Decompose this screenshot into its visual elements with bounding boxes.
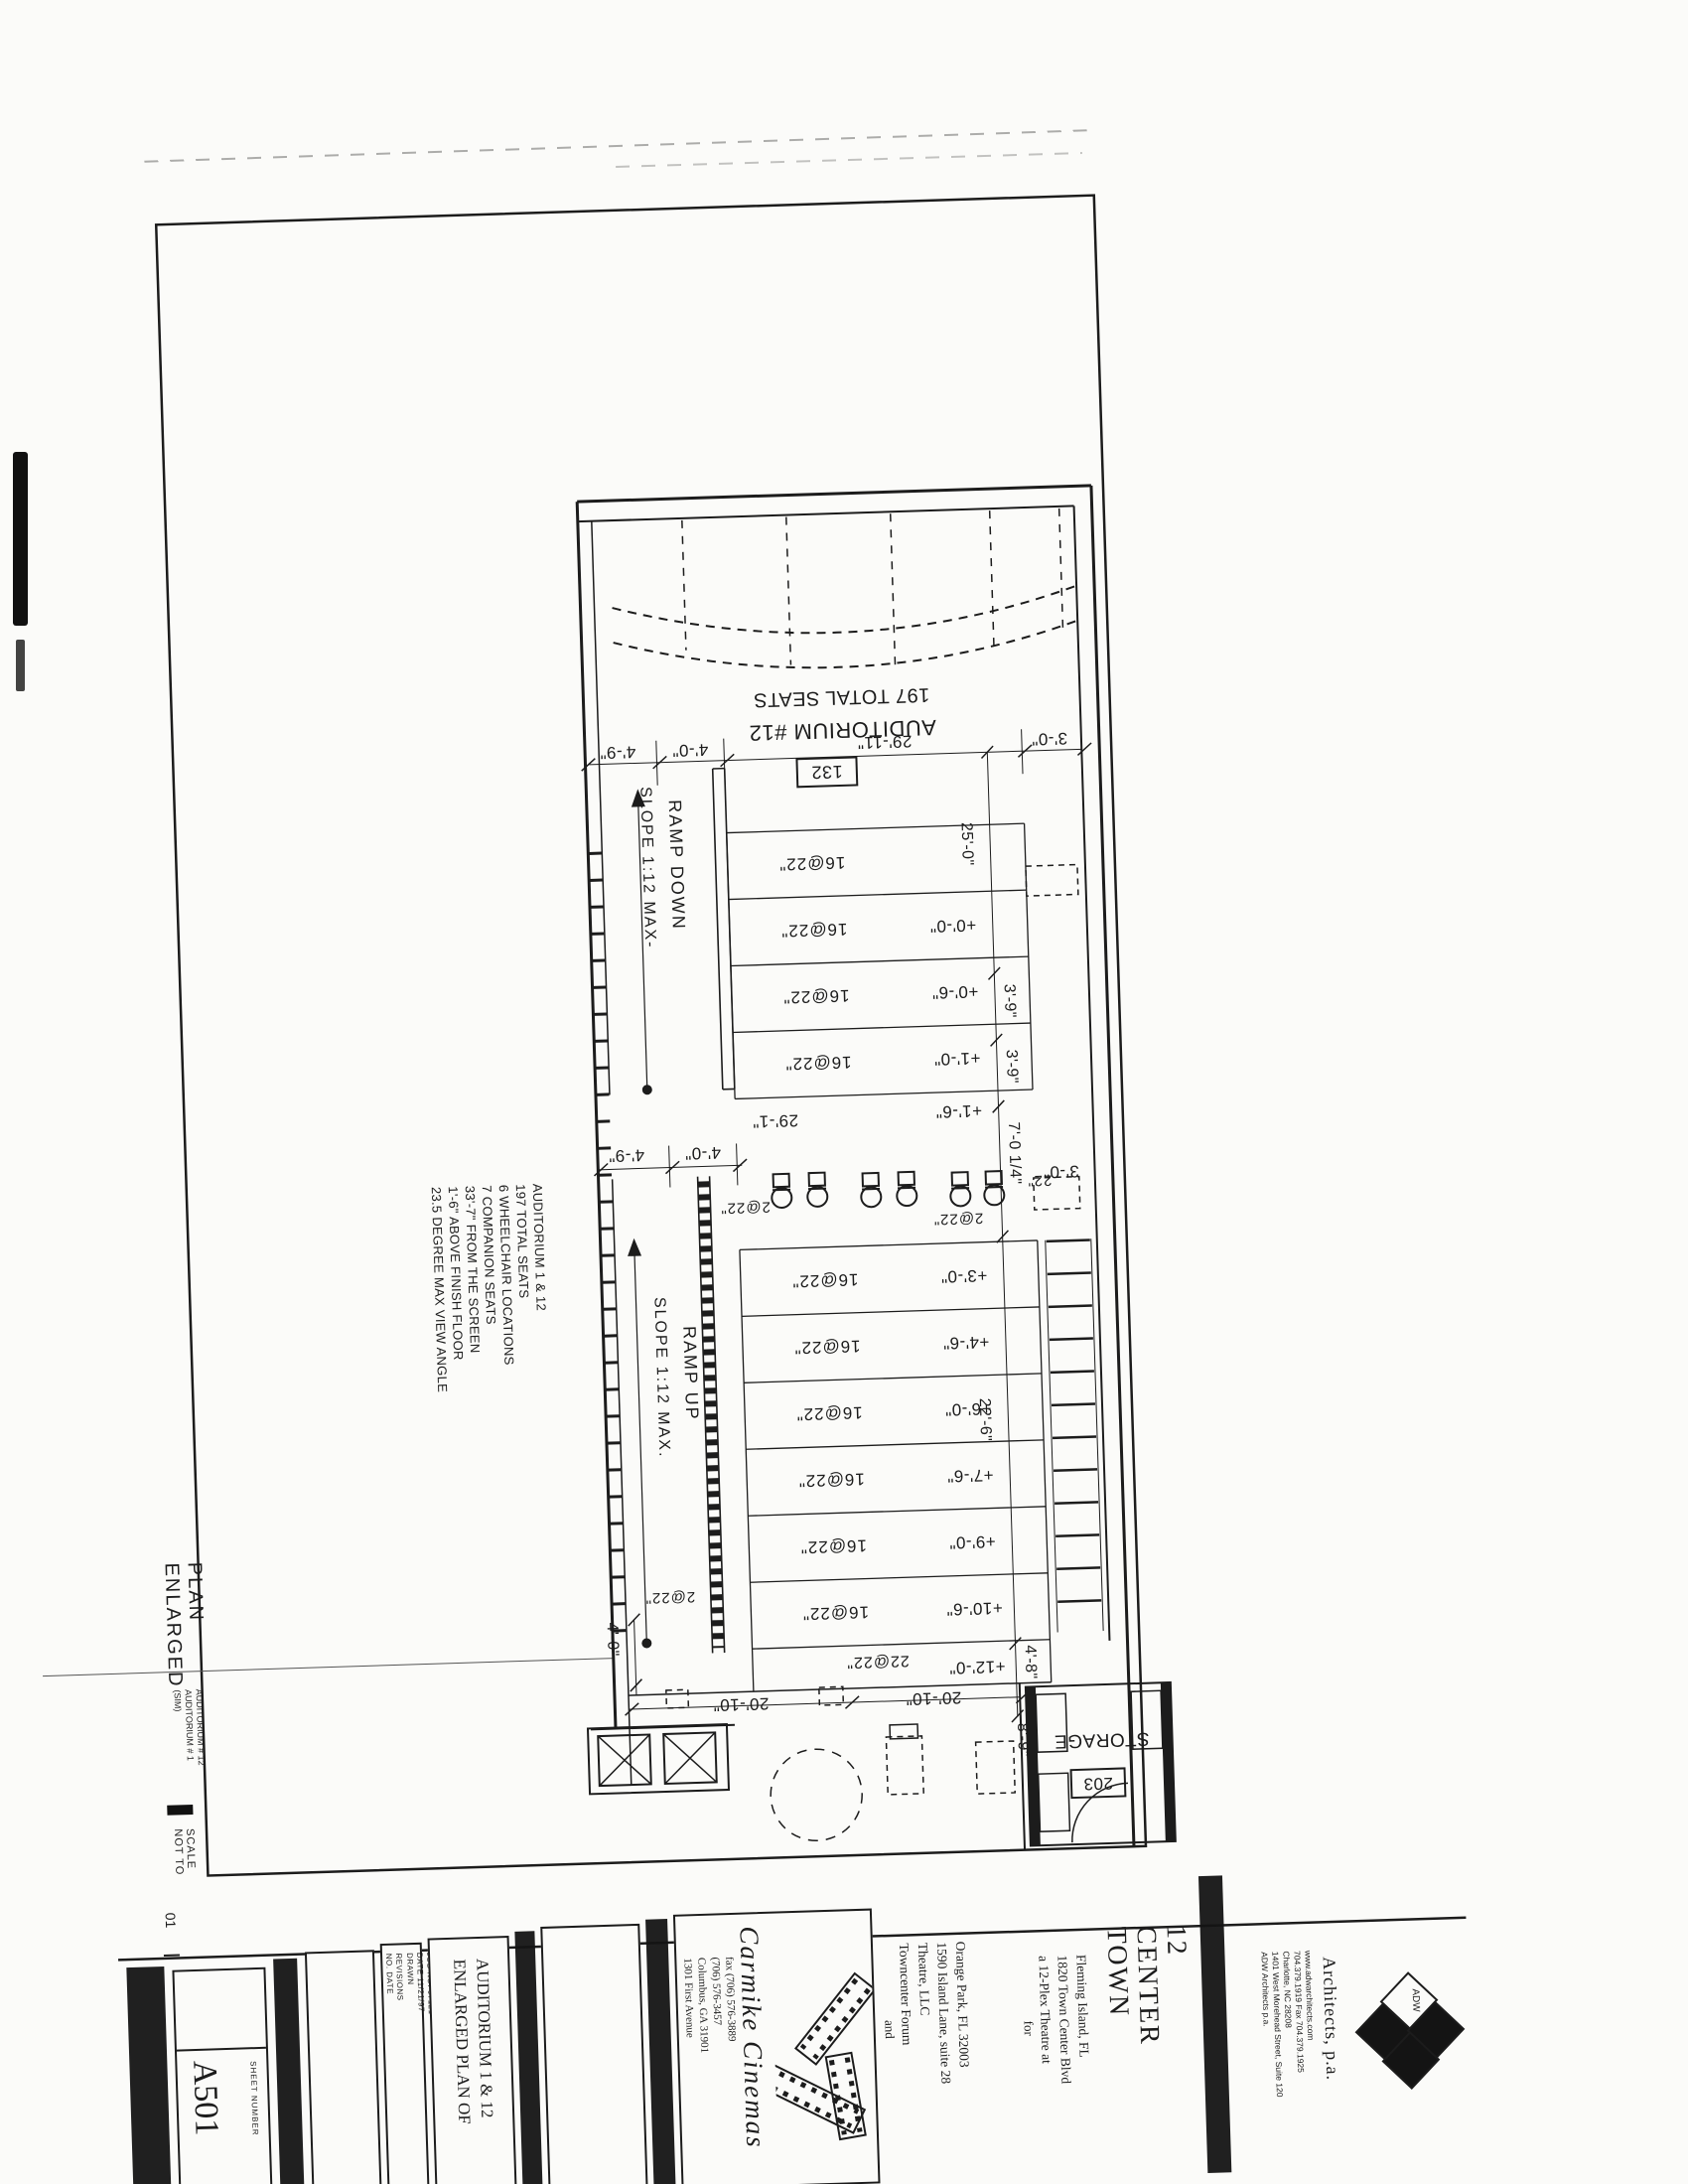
plan-linework — [0, 0, 1688, 2184]
for-label: for — [1020, 2020, 1037, 2060]
project-name-line: CENTER — [1131, 1925, 1169, 2164]
viewport-subtitle-line: AUDITORIUM # 1 (SIM) — [172, 1689, 197, 1780]
row-label: 16@22" — [780, 1601, 891, 1624]
dim-mid-2: 4'-0" — [675, 1142, 732, 1164]
x-box — [663, 1732, 717, 1784]
aisle-label: 2@22" — [925, 1209, 992, 1228]
sheet-number: A501 — [185, 2060, 226, 2184]
row-label: 16@22" — [771, 1268, 881, 1291]
elevation-marker-rear: +12'-0" — [929, 1656, 1026, 1678]
elevation-marker: +4'-6" — [921, 1331, 1012, 1354]
x-box — [598, 1734, 651, 1786]
storage-room — [1026, 1682, 1176, 1846]
lobby-features — [588, 1715, 1017, 1847]
dim-top-4: 3'-0" — [1024, 728, 1076, 750]
project-name-block: TOWN CENTER 12 — [1101, 1924, 1197, 2165]
stamp-cell — [540, 1924, 647, 2184]
dim-top-2: 4'-0" — [662, 739, 719, 761]
wheelchair-icon — [950, 1172, 971, 1207]
revision-strip: NO. DATE REVISIONS DRAWN DATE 11/21/97 J… — [380, 1943, 430, 2184]
elevation-marker: +1'-0" — [913, 1047, 1003, 1070]
row-label: 16@22" — [762, 984, 872, 1007]
row-label: 16@22" — [776, 1468, 887, 1491]
dim-vomitory-2: 20'-10" — [889, 1686, 979, 1709]
adw-logo-text: ADW — [1410, 1988, 1422, 2012]
row-label: 16@22" — [774, 1401, 885, 1424]
dim-chain-3: 3'-9" — [1002, 1049, 1022, 1109]
seating-notes: AUDITORIUM 1 & 12 197 TOTAL SEATS 6 WHEE… — [428, 1183, 559, 1614]
wheelchair-icon — [807, 1173, 828, 1208]
carmike-logo-script: Carmike Cinemas — [733, 1926, 772, 2181]
aisle-label: 22" — [1020, 1171, 1060, 1189]
viewport-tick — [167, 1805, 193, 1816]
titleblock-bar — [126, 1966, 172, 2184]
wheelchair-icon — [897, 1172, 917, 1207]
side-steps — [1046, 1238, 1103, 1632]
elevation-marker: +10'-6" — [929, 1597, 1020, 1620]
dim-chain-5: 22'-6" — [975, 1397, 996, 1493]
dashed-circle — [770, 1748, 864, 1842]
row-label: 16@22" — [773, 1335, 883, 1358]
dim-aisle-width: 29'-1" — [738, 1109, 814, 1131]
film-strip-icon — [772, 1947, 878, 2158]
architect-address-block: ADW Architects p.a. 1401 West Morehead S… — [1258, 1951, 1320, 2161]
viewport-number: 01 — [163, 1912, 180, 1956]
dim-chain-4: 7'-0 1/4" — [1004, 1121, 1025, 1222]
dim-top-3: 29'-11" — [843, 730, 927, 753]
owner-block: Towncenter Forum Theatre, LLC 1590 Islan… — [895, 1941, 977, 2171]
elevation-marker: +0'-0" — [908, 914, 998, 937]
dim-vomitory-1: 20'-10" — [696, 1692, 786, 1715]
screen-arc — [610, 508, 1077, 674]
dim-storage-width: 8'-9" — [1013, 1722, 1034, 1813]
companion-row-label: 2@22" — [637, 1588, 704, 1607]
reference-line — [43, 1659, 614, 1676]
dim-chain-2: 3'-9" — [1000, 983, 1020, 1044]
dim-top-1: 4'-9" — [587, 741, 649, 763]
wheelchair-icon — [861, 1173, 882, 1208]
row-label: 16@22" — [760, 918, 870, 941]
sheet-title: ENLARGED PLAN OF AUDITORIUM 1 & 12 — [448, 1959, 500, 2184]
aisle-label: 2@22" — [712, 1198, 778, 1217]
dim-mid-1: 4'-9" — [596, 1144, 658, 1166]
storage-number-tag: 203 — [1070, 1767, 1127, 1799]
elevation-marker: +7'-6" — [925, 1464, 1016, 1487]
viewport-scale: NOT TO SCALE — [172, 1828, 199, 1919]
adw-logo: ADW — [1348, 1966, 1474, 2158]
rear-row-label: 22@22" — [828, 1651, 928, 1672]
row-label: 16@22" — [778, 1534, 889, 1557]
dim-vomitory-depth: 4'-0" — [603, 1622, 623, 1694]
elevation-marker: +1'-6" — [914, 1099, 1004, 1122]
dim-chain — [981, 746, 1024, 1722]
carmike-address: 1301 First Avenue Columbus, GA 31901 (70… — [680, 1957, 743, 2167]
viewport-subtitle: AUDITORIUM # 12 AUDITORIUM # 1 (SIM) — [172, 1689, 208, 1780]
wheelchair-icons — [772, 1167, 1005, 1212]
elevation-marker: +0'-6" — [911, 980, 1001, 1003]
drawing-sheet: 197 TOTAL SEATS AUDITORIUM #12 132 4'-9"… — [0, 0, 1688, 2184]
sheet-number-label: SHEET NUMBER — [248, 2061, 260, 2170]
carmike-cell: 1301 First Avenue Columbus, GA 31901 (70… — [673, 1909, 881, 2184]
row-label: 16@22" — [764, 1051, 874, 1074]
storage-label: STORAGE — [1043, 1726, 1161, 1752]
scanned-sheet-page: 197 TOTAL SEATS AUDITORIUM #12 132 4'-9"… — [0, 0, 1688, 2184]
blank-cell — [305, 1950, 382, 2184]
elevation-marker: +9'-0" — [927, 1530, 1018, 1553]
sheet-number-divider — [177, 2047, 266, 2052]
and-label: and — [881, 2020, 898, 2060]
dim-chain-1: 25'-0" — [957, 822, 978, 933]
room-number-tag: 132 — [795, 756, 858, 788]
sheet-title-cell: ENLARGED PLAN OF AUDITORIUM 1 & 12 — [428, 1936, 517, 2184]
elevation-marker: +6'-0" — [923, 1397, 1014, 1420]
elevation-marker: +3'-0" — [919, 1264, 1010, 1287]
wall-hatch — [595, 852, 620, 1637]
row-label: 16@22" — [757, 851, 867, 874]
viewport-title: ENLARGED PLAN — [160, 1561, 210, 1701]
dim-chain-6: 4'-8" — [1021, 1645, 1041, 1715]
sheet-number-cell: A501 SHEET NUMBER — [172, 1967, 272, 2184]
project-desc-block: a 12-Plex Theatre at 1820 Town Center Bl… — [1034, 1955, 1097, 2170]
